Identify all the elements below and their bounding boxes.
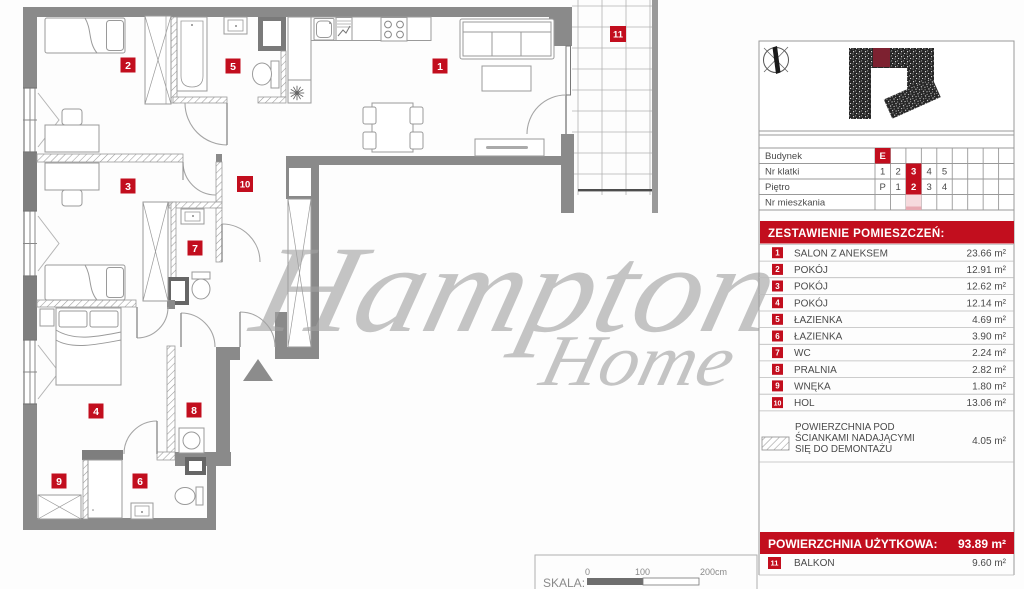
svg-text:12.14 m²: 12.14 m²	[967, 298, 1007, 309]
svg-text:WC: WC	[794, 348, 811, 359]
svg-text:WNĘKA: WNĘKA	[794, 382, 831, 393]
svg-text:3: 3	[125, 181, 131, 193]
svg-text:4.05 m²: 4.05 m²	[972, 436, 1007, 447]
svg-text:4: 4	[942, 182, 947, 193]
svg-text:5: 5	[230, 61, 236, 73]
svg-text:4.69 m²: 4.69 m²	[972, 315, 1007, 326]
svg-text:PRALNIA: PRALNIA	[794, 365, 837, 376]
svg-text:HOL: HOL	[794, 398, 815, 409]
svg-text:Nr klatki: Nr klatki	[765, 167, 799, 178]
svg-text:SALON Z ANEKSEM: SALON Z ANEKSEM	[794, 248, 888, 259]
svg-text:ŁAZIENKA: ŁAZIENKA	[794, 315, 843, 326]
svg-text:93.89 m²: 93.89 m²	[958, 537, 1006, 551]
svg-text:3: 3	[775, 282, 780, 291]
svg-text:2: 2	[896, 167, 901, 178]
svg-text:13.06 m²: 13.06 m²	[967, 398, 1007, 409]
svg-text:9: 9	[56, 476, 62, 488]
svg-text:9.60 m²: 9.60 m²	[972, 558, 1007, 569]
svg-text:SKALA:: SKALA:	[543, 576, 585, 589]
svg-text:12.91 m²: 12.91 m²	[967, 265, 1007, 276]
svg-text:8: 8	[775, 365, 780, 374]
svg-text:E: E	[880, 151, 886, 162]
svg-text:ZESTAWIENIE POMIESZCZEŃ:: ZESTAWIENIE POMIESZCZEŃ:	[768, 227, 945, 240]
svg-text:11: 11	[613, 29, 624, 40]
svg-text:9: 9	[775, 382, 780, 391]
svg-text:ŁAZIENKA: ŁAZIENKA	[794, 332, 843, 343]
svg-text:7: 7	[775, 348, 780, 357]
svg-text:1.80 m²: 1.80 m²	[972, 382, 1007, 393]
svg-text:2.82 m²: 2.82 m²	[972, 365, 1007, 376]
svg-text:1: 1	[775, 249, 780, 258]
svg-text:10: 10	[774, 400, 782, 407]
svg-text:3: 3	[926, 182, 931, 193]
svg-text:1: 1	[437, 61, 443, 73]
svg-text:POKÓJ: POKÓJ	[794, 296, 828, 309]
svg-text:2: 2	[125, 60, 131, 72]
svg-text:BALKON: BALKON	[794, 558, 835, 569]
svg-text:10: 10	[240, 179, 251, 190]
svg-text:7: 7	[192, 243, 198, 255]
svg-text:SIĘ DO DEMONTAŻU: SIĘ DO DEMONTAŻU	[795, 444, 892, 455]
svg-text:4: 4	[93, 406, 99, 418]
svg-text:POWIERZCHNIA UŻYTKOWA:: POWIERZCHNIA UŻYTKOWA:	[768, 536, 938, 551]
svg-text:1: 1	[896, 182, 901, 193]
svg-text:Home: Home	[532, 320, 743, 401]
svg-text:12.62 m²: 12.62 m²	[967, 282, 1007, 293]
svg-text:6: 6	[775, 332, 780, 341]
svg-text:Piętro: Piętro	[765, 182, 790, 193]
svg-text:0: 0	[585, 567, 590, 577]
svg-text:POWIERZCHNIA POD: POWIERZCHNIA POD	[795, 422, 895, 433]
svg-text:4: 4	[926, 167, 931, 178]
svg-text:100: 100	[635, 567, 650, 577]
svg-text:Nr mieszkania: Nr mieszkania	[765, 198, 826, 209]
svg-text:POKÓJ: POKÓJ	[794, 263, 828, 276]
svg-text:11: 11	[771, 559, 779, 568]
svg-text:6: 6	[137, 476, 143, 488]
svg-text:5: 5	[942, 167, 947, 178]
svg-text:1: 1	[880, 167, 885, 178]
svg-text:3.90 m²: 3.90 m²	[972, 332, 1007, 343]
svg-text:8: 8	[191, 405, 197, 417]
svg-text:POKÓJ: POKÓJ	[794, 280, 828, 293]
svg-text:ŚCIANKAMI NADAJĄCYMI: ŚCIANKAMI NADAJĄCYMI	[795, 432, 915, 444]
svg-text:Budynek: Budynek	[765, 151, 802, 162]
svg-text:2.24 m²: 2.24 m²	[972, 348, 1007, 359]
svg-text:23.66 m²: 23.66 m²	[967, 248, 1007, 259]
svg-text:5: 5	[775, 315, 780, 324]
svg-text:2: 2	[775, 265, 780, 274]
svg-text:4: 4	[775, 299, 780, 308]
svg-text:P: P	[880, 182, 886, 193]
svg-text:200cm: 200cm	[700, 567, 727, 577]
svg-text:2: 2	[911, 182, 916, 193]
svg-text:3: 3	[911, 167, 916, 178]
